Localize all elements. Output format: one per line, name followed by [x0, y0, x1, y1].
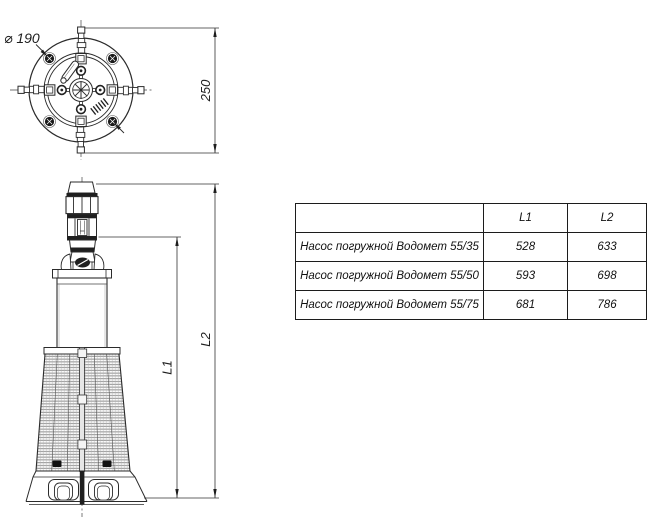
pump-l2-value: 786 — [568, 291, 647, 320]
dim-l2-label: L2 — [198, 332, 213, 347]
pump-l1-value: 593 — [484, 262, 568, 291]
dimensions-table: L1 L2 Насос погружной Водомет 55/35 528 … — [295, 203, 647, 320]
table-header-empty — [296, 204, 484, 233]
pump-model-name: Насос погружной Водомет 55/75 — [296, 291, 484, 320]
bolt-icon — [44, 116, 56, 128]
pump-model-name: Насос погружной Водомет 55/35 — [296, 233, 484, 262]
side-view — [26, 177, 147, 517]
bolt-icon — [107, 53, 119, 65]
table-row: Насос погружной Водомет 55/75 681 786 — [296, 291, 647, 320]
dim-l1-label: L1 — [159, 360, 174, 374]
outlet-fitting — [66, 182, 98, 252]
pump-l1-value: 528 — [484, 233, 568, 262]
pump-l2-value: 633 — [568, 233, 647, 262]
table-header-l1: L1 — [484, 204, 568, 233]
top-flange — [53, 270, 112, 279]
table-header-row: L1 L2 — [296, 204, 647, 233]
table-header-l2: L2 — [568, 204, 647, 233]
drawing-canvas: ⌀ 190 250 — [0, 0, 650, 532]
pump-l2-value: 698 — [568, 262, 647, 291]
vent-slot — [53, 461, 62, 468]
base — [26, 471, 147, 505]
check-valve — [61, 252, 104, 270]
table-row: Насос погружной Водомет 55/50 593 698 — [296, 262, 647, 291]
diameter-label: ⌀ 190 — [4, 30, 40, 46]
vent-slot — [103, 461, 112, 468]
filter-mesh — [36, 348, 130, 472]
diameter-callout: ⌀ 190 — [4, 30, 48, 57]
dim-250-label: 250 — [198, 79, 213, 102]
pump-l1-value: 681 — [484, 291, 568, 320]
pump-model-name: Насос погружной Водомет 55/50 — [296, 262, 484, 291]
hub — [70, 79, 93, 102]
table-row: Насос погружной Водомет 55/35 528 633 — [296, 233, 647, 262]
pump-body — [57, 278, 107, 348]
